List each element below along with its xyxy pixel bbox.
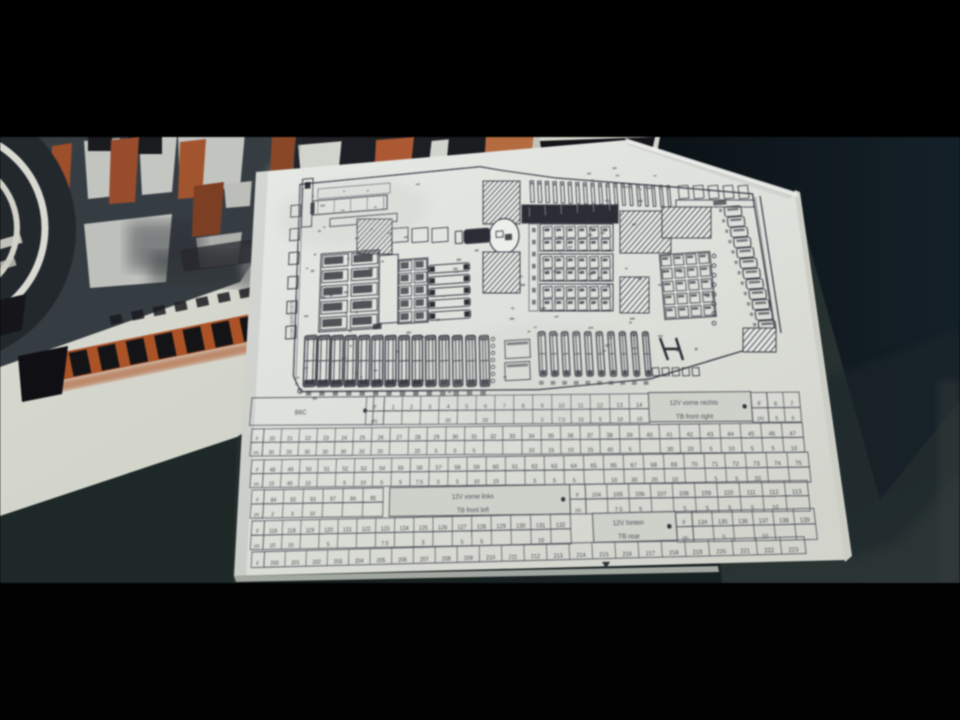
svg-text:(A): (A) <box>757 416 765 421</box>
svg-text:128: 128 <box>477 523 487 530</box>
svg-text:20: 20 <box>414 448 421 455</box>
svg-text:30: 30 <box>341 448 348 455</box>
svg-text:60: 60 <box>493 463 500 470</box>
svg-text:73: 73 <box>753 460 761 467</box>
svg-text:122: 122 <box>362 525 372 532</box>
svg-text:5: 5 <box>343 479 347 486</box>
svg-text:30: 30 <box>631 476 638 483</box>
svg-text:F: F <box>757 400 761 407</box>
svg-text:10: 10 <box>474 478 481 485</box>
svg-text:30: 30 <box>322 448 329 454</box>
svg-text:5: 5 <box>722 533 727 540</box>
svg-text:TB front left: TB front left <box>457 506 490 515</box>
svg-text:10: 10 <box>728 445 736 452</box>
svg-text:30: 30 <box>452 433 459 440</box>
svg-text:107: 107 <box>657 490 668 497</box>
svg-text:7.5: 7.5 <box>416 479 424 486</box>
svg-text:58: 58 <box>454 464 461 471</box>
svg-text:106: 106 <box>635 490 646 497</box>
svg-text:118: 118 <box>287 527 296 534</box>
svg-text:15: 15 <box>269 480 276 487</box>
svg-text:E90309091 M10: E90309091 M10 <box>289 301 295 338</box>
svg-text:10: 10 <box>617 416 624 423</box>
svg-text:205: 205 <box>376 556 386 563</box>
svg-text:14: 14 <box>636 401 643 408</box>
svg-text:5: 5 <box>771 445 776 452</box>
svg-text:43: 43 <box>707 431 715 438</box>
svg-text:15: 15 <box>637 416 644 423</box>
svg-text:5: 5 <box>628 446 632 453</box>
svg-text:208: 208 <box>442 555 452 562</box>
svg-text:38: 38 <box>606 432 613 439</box>
svg-text:120: 120 <box>324 526 334 533</box>
svg-text:42: 42 <box>686 431 693 438</box>
svg-text:F: F <box>256 497 260 504</box>
svg-text:15: 15 <box>548 447 555 454</box>
svg-text:65: 65 <box>590 462 597 469</box>
svg-text:5: 5 <box>573 477 577 484</box>
svg-text:3: 3 <box>428 403 432 409</box>
svg-text:51: 51 <box>324 466 331 473</box>
svg-text:46: 46 <box>768 430 776 437</box>
svg-text:201: 201 <box>291 559 301 566</box>
svg-text:5: 5 <box>422 539 426 546</box>
svg-text:215: 215 <box>599 551 610 558</box>
svg-text:112: 112 <box>769 488 780 495</box>
svg-text:5: 5 <box>380 479 384 486</box>
svg-text:22: 22 <box>305 435 312 441</box>
svg-text:20: 20 <box>286 449 293 455</box>
svg-text:57: 57 <box>435 464 442 471</box>
svg-text:5: 5 <box>735 475 740 482</box>
svg-text:49: 49 <box>287 466 294 473</box>
svg-text:48: 48 <box>269 466 276 473</box>
svg-text:2: 2 <box>410 404 414 410</box>
svg-text:10: 10 <box>360 479 367 486</box>
svg-text:137: 137 <box>758 517 769 524</box>
svg-text:97: 97 <box>330 495 337 502</box>
svg-text:55: 55 <box>398 465 405 472</box>
svg-text:5: 5 <box>454 447 458 454</box>
svg-text:68: 68 <box>650 461 657 468</box>
svg-text:(A): (A) <box>575 508 581 514</box>
svg-text:39: 39 <box>626 432 633 439</box>
svg-text:5: 5 <box>599 416 603 423</box>
svg-text:105: 105 <box>613 491 624 498</box>
svg-text:40: 40 <box>607 446 614 453</box>
svg-text:200: 200 <box>270 559 280 566</box>
svg-text:2: 2 <box>271 511 275 518</box>
svg-text:6: 6 <box>774 400 779 407</box>
svg-text:21: 21 <box>287 435 294 441</box>
svg-text:59: 59 <box>474 464 481 471</box>
svg-text:5: 5 <box>437 478 441 485</box>
svg-text:TB rear: TB rear <box>618 533 641 542</box>
svg-text:5: 5 <box>533 477 537 484</box>
svg-text:12V hinten: 12V hinten <box>613 519 645 528</box>
svg-text:33: 33 <box>509 433 516 440</box>
svg-text:36: 36 <box>567 432 574 439</box>
svg-text:5: 5 <box>327 541 331 548</box>
svg-text:47: 47 <box>789 430 797 437</box>
svg-text:124: 124 <box>400 525 410 532</box>
svg-text:10: 10 <box>288 541 295 548</box>
svg-text:135: 135 <box>718 518 729 525</box>
svg-text:5: 5 <box>553 477 557 484</box>
svg-text:45: 45 <box>748 430 756 437</box>
svg-text:222: 222 <box>764 546 775 554</box>
svg-text:62: 62 <box>531 463 538 470</box>
svg-text:5: 5 <box>480 538 484 545</box>
svg-text:66: 66 <box>610 462 617 469</box>
svg-text:5: 5 <box>714 475 718 482</box>
svg-text:93: 93 <box>310 496 317 503</box>
svg-text:92: 92 <box>290 496 297 503</box>
svg-text:(A): (A) <box>254 512 260 517</box>
svg-text:29: 29 <box>433 434 440 441</box>
svg-text:10: 10 <box>791 445 799 452</box>
svg-text:223: 223 <box>788 546 800 554</box>
svg-text:10: 10 <box>493 478 500 485</box>
svg-text:34: 34 <box>528 433 535 440</box>
svg-text:5: 5 <box>750 445 755 452</box>
svg-text:30: 30 <box>268 449 275 455</box>
svg-text:5: 5 <box>435 447 439 454</box>
svg-text:25: 25 <box>359 434 366 440</box>
svg-text:207: 207 <box>420 555 430 562</box>
svg-text:139: 139 <box>799 516 810 523</box>
svg-text:5: 5 <box>709 445 713 452</box>
svg-text:(A): (A) <box>253 450 259 455</box>
svg-text:20: 20 <box>269 435 276 441</box>
svg-text:50: 50 <box>306 466 313 473</box>
svg-text:134: 134 <box>697 518 708 525</box>
svg-text:20: 20 <box>445 417 451 423</box>
svg-text:61: 61 <box>512 463 519 470</box>
svg-text:213: 213 <box>553 552 563 559</box>
svg-text:10: 10 <box>305 480 312 487</box>
svg-text:3: 3 <box>291 510 295 517</box>
svg-text:10: 10 <box>762 532 770 539</box>
svg-text:212: 212 <box>531 552 541 559</box>
svg-text:F: F <box>576 491 580 498</box>
svg-text:40: 40 <box>287 480 294 487</box>
svg-text:203: 203 <box>334 558 344 565</box>
svg-text:138: 138 <box>779 516 790 523</box>
svg-text:125: 125 <box>419 524 429 531</box>
svg-text:130: 130 <box>516 522 526 529</box>
svg-text:7.5: 7.5 <box>615 506 624 513</box>
svg-text:12V vorne links: 12V vorne links <box>452 493 495 502</box>
svg-text:23: 23 <box>323 435 330 441</box>
svg-text:F: F <box>256 435 260 441</box>
svg-text:15: 15 <box>578 416 585 423</box>
svg-text:63: 63 <box>551 463 558 470</box>
svg-text:74: 74 <box>774 460 782 467</box>
svg-text:7.5: 7.5 <box>381 540 389 547</box>
svg-text:40: 40 <box>646 431 653 438</box>
svg-text:10: 10 <box>672 476 679 483</box>
svg-text:53: 53 <box>361 465 368 472</box>
svg-text:219: 219 <box>692 548 703 556</box>
svg-text:216: 216 <box>622 550 633 557</box>
svg-text:206: 206 <box>398 556 408 563</box>
svg-text:20: 20 <box>377 448 384 455</box>
svg-text:10: 10 <box>529 447 536 454</box>
svg-text:B6C: B6C <box>295 409 308 417</box>
svg-text:5: 5 <box>775 415 780 422</box>
svg-text:5: 5 <box>473 447 477 454</box>
svg-text:10: 10 <box>538 537 545 544</box>
svg-text:129: 129 <box>496 522 506 529</box>
svg-text:221: 221 <box>740 547 751 555</box>
svg-text:5: 5 <box>683 505 687 512</box>
svg-text:5: 5 <box>399 479 403 486</box>
svg-text:24: 24 <box>341 435 348 441</box>
svg-text:56: 56 <box>417 464 424 471</box>
svg-text:70: 70 <box>691 461 699 468</box>
svg-text:209: 209 <box>464 554 474 561</box>
svg-text:109: 109 <box>701 489 712 496</box>
svg-text:35: 35 <box>548 432 555 439</box>
svg-text:214: 214 <box>576 551 586 558</box>
svg-text:F: F <box>682 519 687 526</box>
svg-text:116: 116 <box>269 527 278 534</box>
svg-text:127: 127 <box>457 523 467 530</box>
svg-text:10: 10 <box>611 476 618 483</box>
svg-text:220: 220 <box>716 547 727 555</box>
svg-text:31: 31 <box>471 433 478 440</box>
svg-text:30: 30 <box>667 446 674 453</box>
svg-text:94: 94 <box>350 495 357 502</box>
svg-text:111: 111 <box>746 489 756 496</box>
svg-text:5: 5 <box>456 478 460 485</box>
svg-text:30: 30 <box>304 449 311 455</box>
svg-text:218: 218 <box>669 549 680 557</box>
svg-text:10: 10 <box>568 446 575 453</box>
svg-text:1: 1 <box>392 404 396 410</box>
svg-text:75: 75 <box>795 459 803 466</box>
svg-text:10: 10 <box>269 542 276 549</box>
svg-text:20: 20 <box>651 476 658 483</box>
svg-text:5: 5 <box>639 505 643 512</box>
svg-text:67: 67 <box>630 462 637 469</box>
svg-text:132: 132 <box>556 521 566 528</box>
svg-text:26: 26 <box>378 434 385 441</box>
svg-text:TB front right: TB front right <box>676 413 714 421</box>
svg-text:104: 104 <box>591 491 601 498</box>
svg-text:204: 204 <box>355 557 365 564</box>
svg-text:136: 136 <box>738 517 749 524</box>
svg-text:52: 52 <box>342 465 349 472</box>
svg-text:28: 28 <box>415 434 422 441</box>
svg-text:32: 32 <box>490 433 497 440</box>
svg-text:211: 211 <box>509 553 519 560</box>
svg-text:F: F <box>373 404 377 410</box>
svg-text:95: 95 <box>370 495 377 502</box>
svg-text:108: 108 <box>679 490 690 497</box>
svg-text:37: 37 <box>587 432 594 439</box>
svg-text:41: 41 <box>666 431 673 438</box>
svg-text:F: F <box>256 528 260 535</box>
svg-text:131: 131 <box>536 522 546 529</box>
svg-text:123: 123 <box>381 525 391 532</box>
svg-text:12V vorne rechts: 12V vorne rechts <box>669 399 719 407</box>
svg-text:54: 54 <box>379 465 386 472</box>
svg-text:69: 69 <box>671 461 679 468</box>
svg-text:10: 10 <box>309 510 316 517</box>
svg-text:217: 217 <box>645 549 656 556</box>
svg-text:7: 7 <box>790 400 795 407</box>
svg-text:64: 64 <box>571 462 578 469</box>
svg-text:5: 5 <box>791 414 796 421</box>
svg-text:(A): (A) <box>254 543 260 549</box>
svg-text:84: 84 <box>270 496 277 503</box>
svg-text:27: 27 <box>396 434 403 441</box>
svg-text:(A): (A) <box>371 418 378 424</box>
svg-text:110: 110 <box>724 489 735 496</box>
svg-text:44: 44 <box>727 430 735 437</box>
svg-text:121: 121 <box>343 526 353 533</box>
svg-text:126: 126 <box>438 524 448 531</box>
svg-text:71: 71 <box>712 460 720 467</box>
svg-text:202: 202 <box>312 558 322 565</box>
svg-text:5: 5 <box>461 538 465 545</box>
svg-text:113: 113 <box>792 488 803 495</box>
svg-text:210: 210 <box>486 554 496 561</box>
svg-text:15: 15 <box>587 446 594 453</box>
svg-text:119: 119 <box>306 527 315 534</box>
svg-text:F: F <box>256 467 260 473</box>
svg-text:F: F <box>256 560 260 567</box>
svg-text:20: 20 <box>359 448 366 455</box>
svg-text:72: 72 <box>732 460 740 467</box>
svg-text:(A): (A) <box>253 482 259 487</box>
svg-text:20: 20 <box>687 445 694 452</box>
